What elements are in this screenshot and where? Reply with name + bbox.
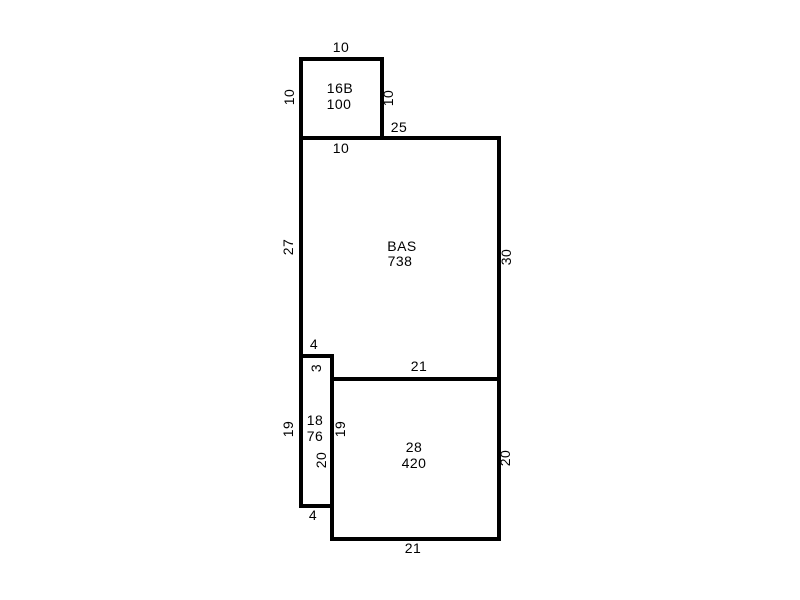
dim-16b-left: 10 — [282, 89, 296, 106]
dim-28-right: 20 — [498, 450, 512, 467]
dim-28-bottom: 21 — [405, 541, 422, 555]
room-name-28: 28 — [406, 440, 423, 454]
dim-18-right: 19 — [333, 421, 347, 438]
dim-16b-right: 10 — [381, 90, 395, 107]
wall-16b-top — [299, 57, 384, 61]
floorplan-sketch: 10 16B 100 10 10 10 25 27 BAS 738 30 4 3… — [0, 0, 800, 600]
wall-left-outer — [299, 57, 303, 508]
room-name-bas: BAS — [387, 239, 417, 253]
dim-bas-left: 27 — [281, 239, 295, 256]
wall-28-top — [330, 377, 501, 381]
room-area-28: 420 — [402, 456, 427, 470]
dim-step-side: 3 — [309, 364, 323, 372]
room-name-16b: 16B — [327, 81, 353, 95]
wall-bas-top — [299, 136, 501, 140]
dim-28-top: 21 — [411, 359, 428, 373]
dim-16b-bottom: 10 — [333, 141, 350, 155]
dim-16b-top: 10 — [333, 40, 350, 54]
wall-step-top — [299, 354, 334, 358]
wall-shared-vertical — [330, 354, 334, 541]
dim-18-lower: 20 — [314, 452, 328, 469]
room-area-16b: 100 — [327, 97, 352, 111]
dim-18-left: 19 — [281, 421, 295, 438]
dim-18-bottom: 4 — [309, 508, 317, 522]
room-name-18: 18 — [307, 413, 324, 427]
dim-step-top: 4 — [310, 337, 318, 351]
room-area-18: 76 — [307, 429, 324, 443]
dim-bas-top: 25 — [391, 120, 408, 134]
room-area-bas: 738 — [388, 254, 413, 268]
dim-bas-right: 30 — [499, 249, 513, 266]
wall-right-outer — [497, 136, 501, 541]
